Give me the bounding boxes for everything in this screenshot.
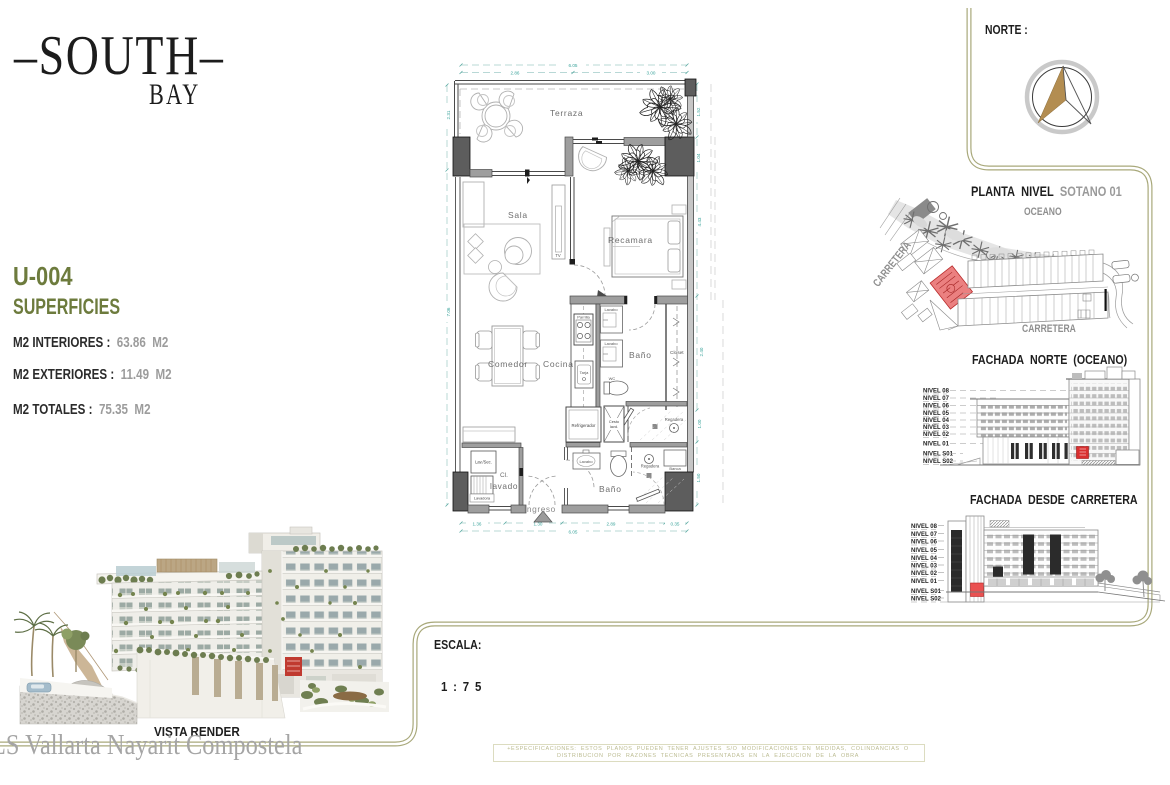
svg-text:Ingreso: Ingreso	[524, 504, 556, 514]
svg-text:6.05: 6.05	[569, 63, 578, 68]
svg-text:NIVEL S01: NIVEL S01	[911, 589, 942, 595]
svg-text:Parrilla: Parrilla	[577, 315, 590, 320]
svg-text:Lavabo: Lavabo	[604, 341, 618, 346]
svg-text:6.05: 6.05	[569, 530, 578, 535]
svg-text:2.89: 2.89	[607, 522, 616, 527]
svg-text:NIVEL 04: NIVEL 04	[923, 418, 950, 424]
svg-text:NIVEL 06: NIVEL 06	[911, 540, 938, 546]
svg-text:Cl.: Cl.	[500, 472, 508, 479]
svg-text:1.36: 1.36	[473, 522, 482, 527]
svg-text:NIVEL 03: NIVEL 03	[923, 425, 950, 431]
svg-text:NIVEL 08: NIVEL 08	[923, 389, 950, 395]
svg-text:2.86: 2.86	[511, 71, 520, 76]
svg-text:Terraza: Terraza	[550, 108, 583, 118]
svg-text:Tarja: Tarja	[580, 370, 589, 375]
svg-text:NIVEL 02: NIVEL 02	[923, 432, 950, 438]
svg-text:4.43: 4.43	[697, 217, 702, 226]
svg-text:2.31: 2.31	[446, 110, 451, 119]
svg-text:NIVEL 01: NIVEL 01	[911, 579, 938, 585]
svg-text:TV: TV	[555, 253, 561, 258]
svg-text:1.50: 1.50	[696, 473, 701, 482]
svg-text:Sala: Sala	[508, 210, 528, 220]
svg-text:0.35: 0.35	[671, 522, 680, 527]
svg-text:Comedor: Comedor	[488, 359, 528, 369]
svg-text:2.40: 2.40	[699, 347, 704, 356]
svg-text:Lavabo: Lavabo	[579, 459, 593, 464]
svg-text:Lav./Sec.: Lav./Sec.	[475, 460, 492, 465]
svg-text:Baño: Baño	[599, 484, 622, 494]
svg-text:NIVEL S01: NIVEL S01	[923, 452, 954, 458]
svg-text:Cocina: Cocina	[543, 359, 574, 369]
svg-text:Lavadora: Lavadora	[474, 496, 491, 501]
svg-text:NIVEL 07: NIVEL 07	[923, 396, 950, 402]
svg-text:lavd.: lavd.	[610, 424, 618, 429]
svg-text:NIVEL 04: NIVEL 04	[911, 556, 938, 562]
svg-text:NIVEL S02: NIVEL S02	[911, 597, 942, 603]
svg-text:lavado: lavado	[490, 481, 518, 491]
svg-text:Lavabo: Lavabo	[604, 307, 618, 312]
svg-text:NIVEL 08: NIVEL 08	[911, 524, 938, 530]
svg-text:NIVEL 07: NIVEL 07	[911, 532, 938, 538]
svg-text:Closet: Closet	[670, 350, 684, 356]
svg-text:Banca: Banca	[669, 466, 681, 471]
svg-text:7.06: 7.06	[446, 307, 451, 316]
svg-text:WC: WC	[609, 376, 616, 381]
svg-text:NIVEL 06: NIVEL 06	[923, 404, 950, 410]
svg-text:1.00: 1.00	[697, 419, 702, 428]
svg-text:1.04: 1.04	[696, 153, 701, 162]
svg-text:Refrigerador: Refrigerador	[572, 423, 596, 428]
svg-text:NIVEL 05: NIVEL 05	[923, 411, 950, 417]
svg-text:NIVEL 03: NIVEL 03	[911, 564, 938, 570]
svg-text:NIVEL 05: NIVEL 05	[911, 548, 938, 554]
svg-text:Recamara: Recamara	[608, 235, 653, 245]
svg-text:NIVEL 01: NIVEL 01	[923, 442, 950, 448]
svg-text:1.52: 1.52	[696, 107, 701, 116]
svg-text:Baño: Baño	[629, 350, 652, 360]
svg-text:NIVEL 02: NIVEL 02	[911, 571, 938, 577]
svg-text:3.00: 3.00	[647, 71, 656, 76]
svg-text:Regadera: Regadera	[641, 464, 660, 469]
svg-text:NIVEL S02: NIVEL S02	[923, 459, 954, 465]
